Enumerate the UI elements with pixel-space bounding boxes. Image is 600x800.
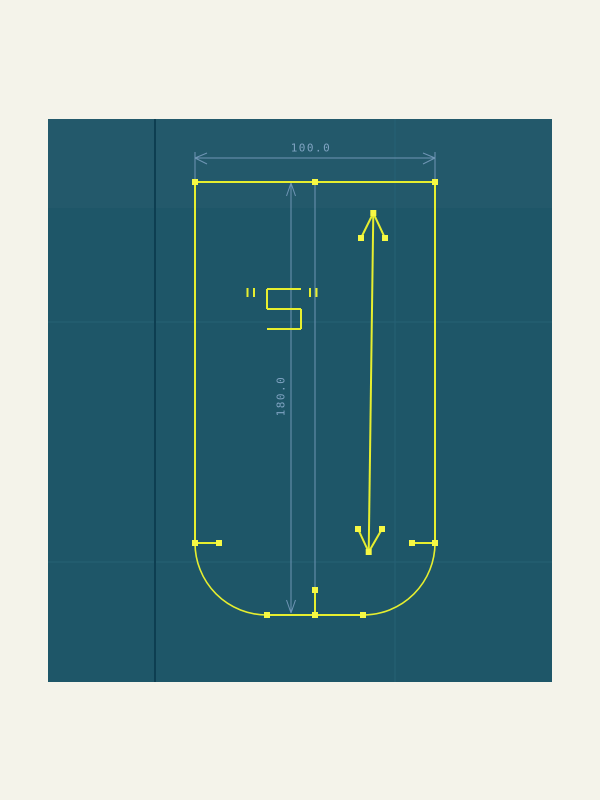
cad-viewport[interactable]	[0, 0, 600, 800]
canvas-shade-band	[48, 119, 552, 208]
dimension-label-height[interactable]: 180.0	[275, 376, 288, 417]
sketch-vertex-handle[interactable]	[432, 540, 438, 546]
sketch-vertex-handle[interactable]	[382, 235, 388, 241]
sketch-vertex-handle[interactable]	[432, 179, 438, 185]
sketch-vertex-handle[interactable]	[312, 612, 318, 618]
sketch-vertex-handle[interactable]	[409, 540, 415, 546]
sketch-vertex-handle[interactable]	[355, 526, 361, 532]
app-window: 100.0 180.0	[0, 0, 600, 800]
sketch-vertex-handle[interactable]	[360, 612, 366, 618]
dimension-label-width[interactable]: 100.0	[291, 142, 332, 155]
sketch-vertex-handle[interactable]	[370, 210, 376, 216]
sketch-vertex-handle[interactable]	[379, 526, 385, 532]
sketch-vertex-handle[interactable]	[312, 587, 318, 593]
sketch-vertex-handle[interactable]	[366, 549, 372, 555]
sketch-vertex-handle[interactable]	[312, 179, 318, 185]
sketch-vertex-handle[interactable]	[264, 612, 270, 618]
sketch-vertex-handle[interactable]	[358, 235, 364, 241]
sketch-vertex-handle[interactable]	[192, 179, 198, 185]
sketch-vertex-handle[interactable]	[216, 540, 222, 546]
sketch-vertex-handle[interactable]	[192, 540, 198, 546]
